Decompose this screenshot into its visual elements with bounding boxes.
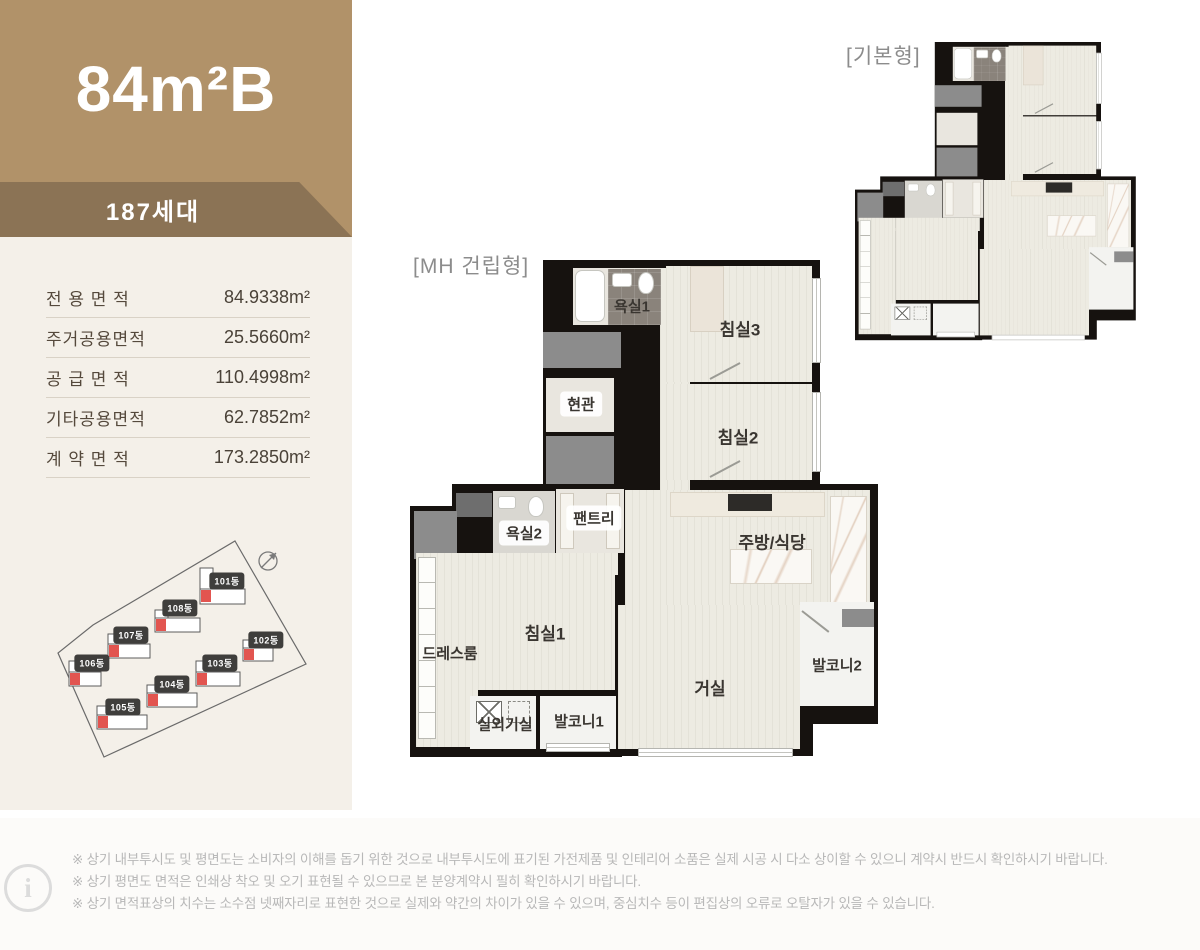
area-value: 62.7852m²	[224, 407, 310, 428]
households-count: 187세대	[106, 192, 200, 227]
room-label-bath1: 욕실1	[614, 296, 650, 317]
area-table: 전 용 면 적 84.9338m² 주거공용면적 25.5660m² 공 급 면…	[46, 278, 310, 478]
toilet-icon	[992, 49, 1002, 62]
toilet-icon	[528, 496, 544, 517]
building-label: 106동	[74, 655, 109, 672]
room-label-entrance: 현관	[560, 392, 602, 417]
footer-disclaimer: i ※ 상기 내부투시도 및 평면도는 소비자의 이해를 돕기 위한 것으로 내…	[0, 818, 1200, 950]
table-row: 주거공용면적 25.5660m²	[46, 318, 310, 358]
toilet-icon	[926, 184, 936, 197]
closet-icon	[860, 220, 871, 329]
left-info-panel: 84m²B 187세대 전 용 면 적 84.9338m² 주거공용면적 25.…	[0, 0, 352, 810]
area-label: 공 급 면 적	[46, 365, 130, 390]
bathtub-icon	[575, 270, 605, 322]
table-row: 전 용 면 적 84.9338m²	[46, 278, 310, 318]
unit-header: 84m²B 187세대	[0, 0, 352, 237]
area-value: 84.9338m²	[224, 287, 310, 308]
toilet-icon	[638, 272, 654, 294]
area-value: 110.4998m²	[215, 367, 310, 388]
kitchen-island	[1047, 215, 1096, 236]
room-label-balcony1: 발코니1	[554, 711, 604, 732]
room-label-living: 거실	[694, 675, 725, 700]
room-label-bed1: 침실1	[525, 620, 566, 645]
room-label-bed3: 침실3	[720, 316, 761, 341]
building-label: 103동	[202, 655, 237, 672]
building-label: 101동	[209, 573, 244, 590]
bathtub-icon	[954, 48, 972, 79]
area-label: 전 용 면 적	[46, 285, 130, 310]
households-band: 187세대	[0, 182, 352, 237]
disclaimer-line: ※ 상기 평면도 면적은 인쇄상 착오 및 오기 표현될 수 있으므로 본 분양…	[72, 871, 1108, 893]
room-label-outdoor: 실외기실	[477, 714, 532, 735]
unit-type-title: 84m²B	[0, 52, 352, 126]
building-label: 105동	[105, 699, 140, 716]
table-row: 공 급 면 적 110.4998m²	[46, 358, 310, 398]
room-label-pantry: 팬트리	[566, 506, 621, 531]
site-map: 101동 102동 103동 104동 105동 106동 107동 108동	[40, 528, 330, 776]
room-label-balcony2: 발코니2	[812, 655, 862, 676]
area-value: 25.5660m²	[224, 327, 310, 348]
kitchen-island	[730, 549, 812, 584]
room-label-dressroom: 드레스룸	[422, 643, 477, 664]
building-label: 107동	[113, 627, 148, 644]
info-icon: i	[4, 864, 52, 912]
brochure-page: 84m²B 187세대 전 용 면 적 84.9338m² 주거공용면적 25.…	[0, 0, 1200, 950]
room-label-bath2: 욕실2	[499, 521, 549, 546]
floorplan-basic	[855, 42, 1137, 342]
floorplan-mh: 욕실1 침실3 현관 침실2 팬트리 욕실2 주방/식당 드레스룸 침실1 거실…	[410, 260, 880, 760]
building-label: 102동	[248, 632, 283, 649]
area-label: 기타공용면적	[46, 405, 146, 430]
disclaimer-line: ※ 상기 면적표상의 치수는 소수점 넷째자리로 표현한 것으로 실제와 약간의…	[72, 893, 1108, 915]
site-map-drawing	[40, 528, 330, 776]
area-label: 계 약 면 적	[46, 445, 130, 470]
building-label: 104동	[154, 676, 189, 693]
area-label: 주거공용면적	[46, 325, 146, 350]
table-row: 계 약 면 적 173.2850m²	[46, 438, 310, 478]
table-row: 기타공용면적 62.7852m²	[46, 398, 310, 438]
building-label: 108동	[162, 600, 197, 617]
compass-icon	[259, 552, 277, 570]
outdoor-unit-icon	[895, 307, 911, 320]
disclaimer-line: ※ 상기 내부투시도 및 평면도는 소비자의 이해를 돕기 위한 것으로 내부투…	[72, 849, 1108, 871]
room-label-kitchen: 주방/식당	[738, 529, 805, 554]
room-label-bed2: 침실2	[718, 424, 759, 449]
area-value: 173.2850m²	[214, 447, 310, 468]
